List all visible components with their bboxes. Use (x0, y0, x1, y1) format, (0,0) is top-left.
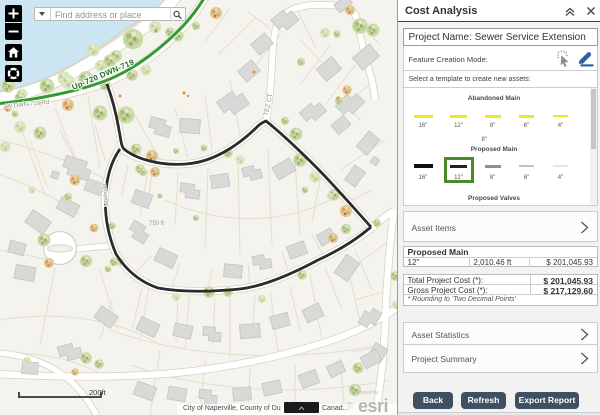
svg-text:750 ft: 750 ft (149, 221, 164, 227)
